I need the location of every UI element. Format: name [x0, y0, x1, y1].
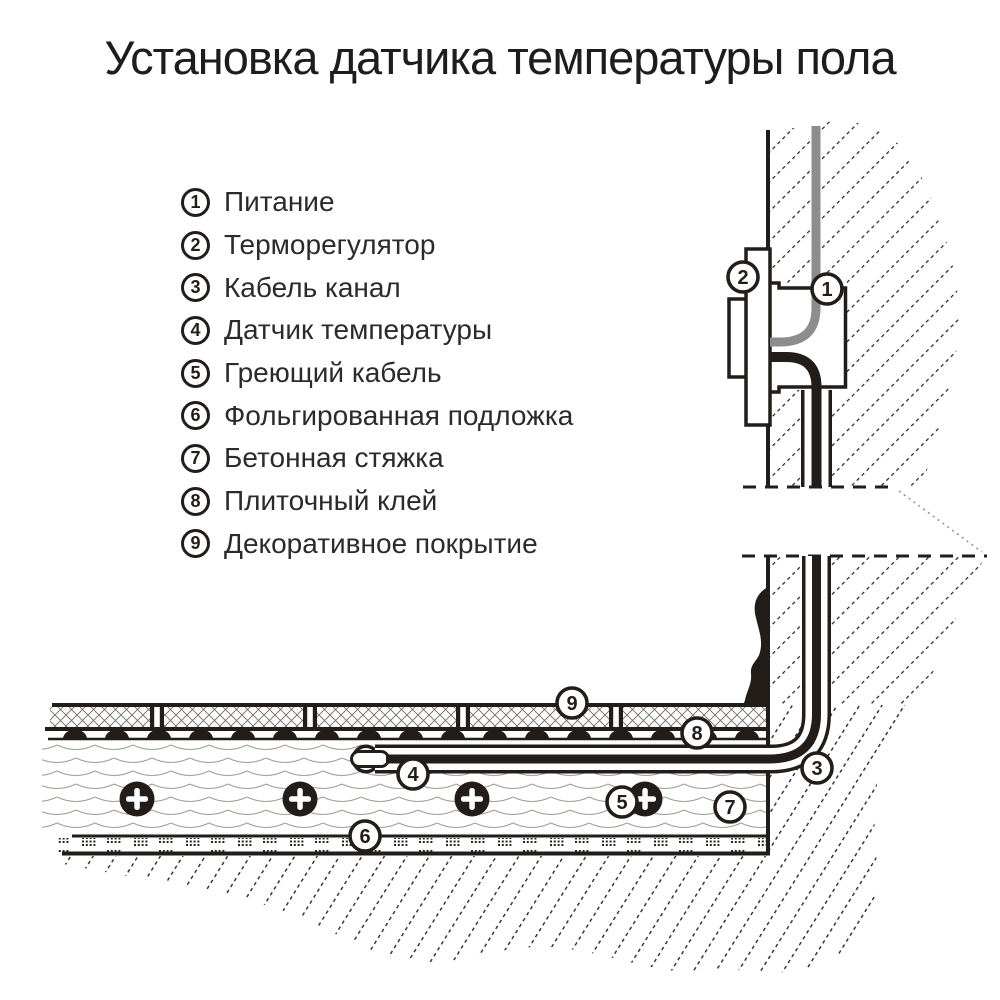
heating-cable-icon — [283, 782, 318, 817]
installation-diagram: 1 2 3 4 5 6 7 — [0, 0, 1000, 1000]
torn-edge-hint — [899, 491, 982, 552]
heating-cable-icon — [120, 782, 155, 817]
marker-6-foil-underlay: 6 — [350, 821, 380, 851]
underlay-layer — [58, 836, 770, 854]
svg-text:9: 9 — [566, 693, 577, 715]
floor-layers — [42, 556, 817, 854]
svg-text:4: 4 — [407, 764, 419, 786]
svg-text:2: 2 — [737, 267, 748, 289]
wall-upper-section — [729, 120, 959, 487]
svg-text:5: 5 — [616, 792, 627, 814]
temperature-sensor — [352, 752, 389, 767]
tile-layer — [45, 703, 770, 732]
section-break — [742, 487, 987, 556]
marker-9-decor-cover: 9 — [557, 688, 587, 718]
marker-5-heating-cable: 5 — [607, 787, 637, 817]
wall-blob — [743, 586, 770, 706]
marker-3-cable-channel: 3 — [802, 753, 832, 783]
cable-channel — [352, 556, 817, 774]
heating-cable-icon — [455, 782, 490, 817]
svg-text:6: 6 — [359, 826, 370, 848]
wall-lower-hatch — [768, 557, 985, 705]
marker-2-thermostat: 2 — [728, 262, 758, 292]
adhesive-layer — [48, 730, 766, 740]
marker-4-temp-sensor: 4 — [398, 759, 428, 789]
svg-text:7: 7 — [724, 797, 735, 819]
svg-text:1: 1 — [821, 279, 832, 301]
svg-text:3: 3 — [811, 758, 822, 780]
svg-text:8: 8 — [691, 723, 702, 745]
marker-7-screed: 7 — [715, 792, 745, 822]
marker-1-power: 1 — [812, 274, 842, 304]
marker-8-tile-glue: 8 — [682, 718, 712, 748]
infographic-page: Установка датчика температуры пола 1 Пит… — [0, 0, 1000, 1000]
